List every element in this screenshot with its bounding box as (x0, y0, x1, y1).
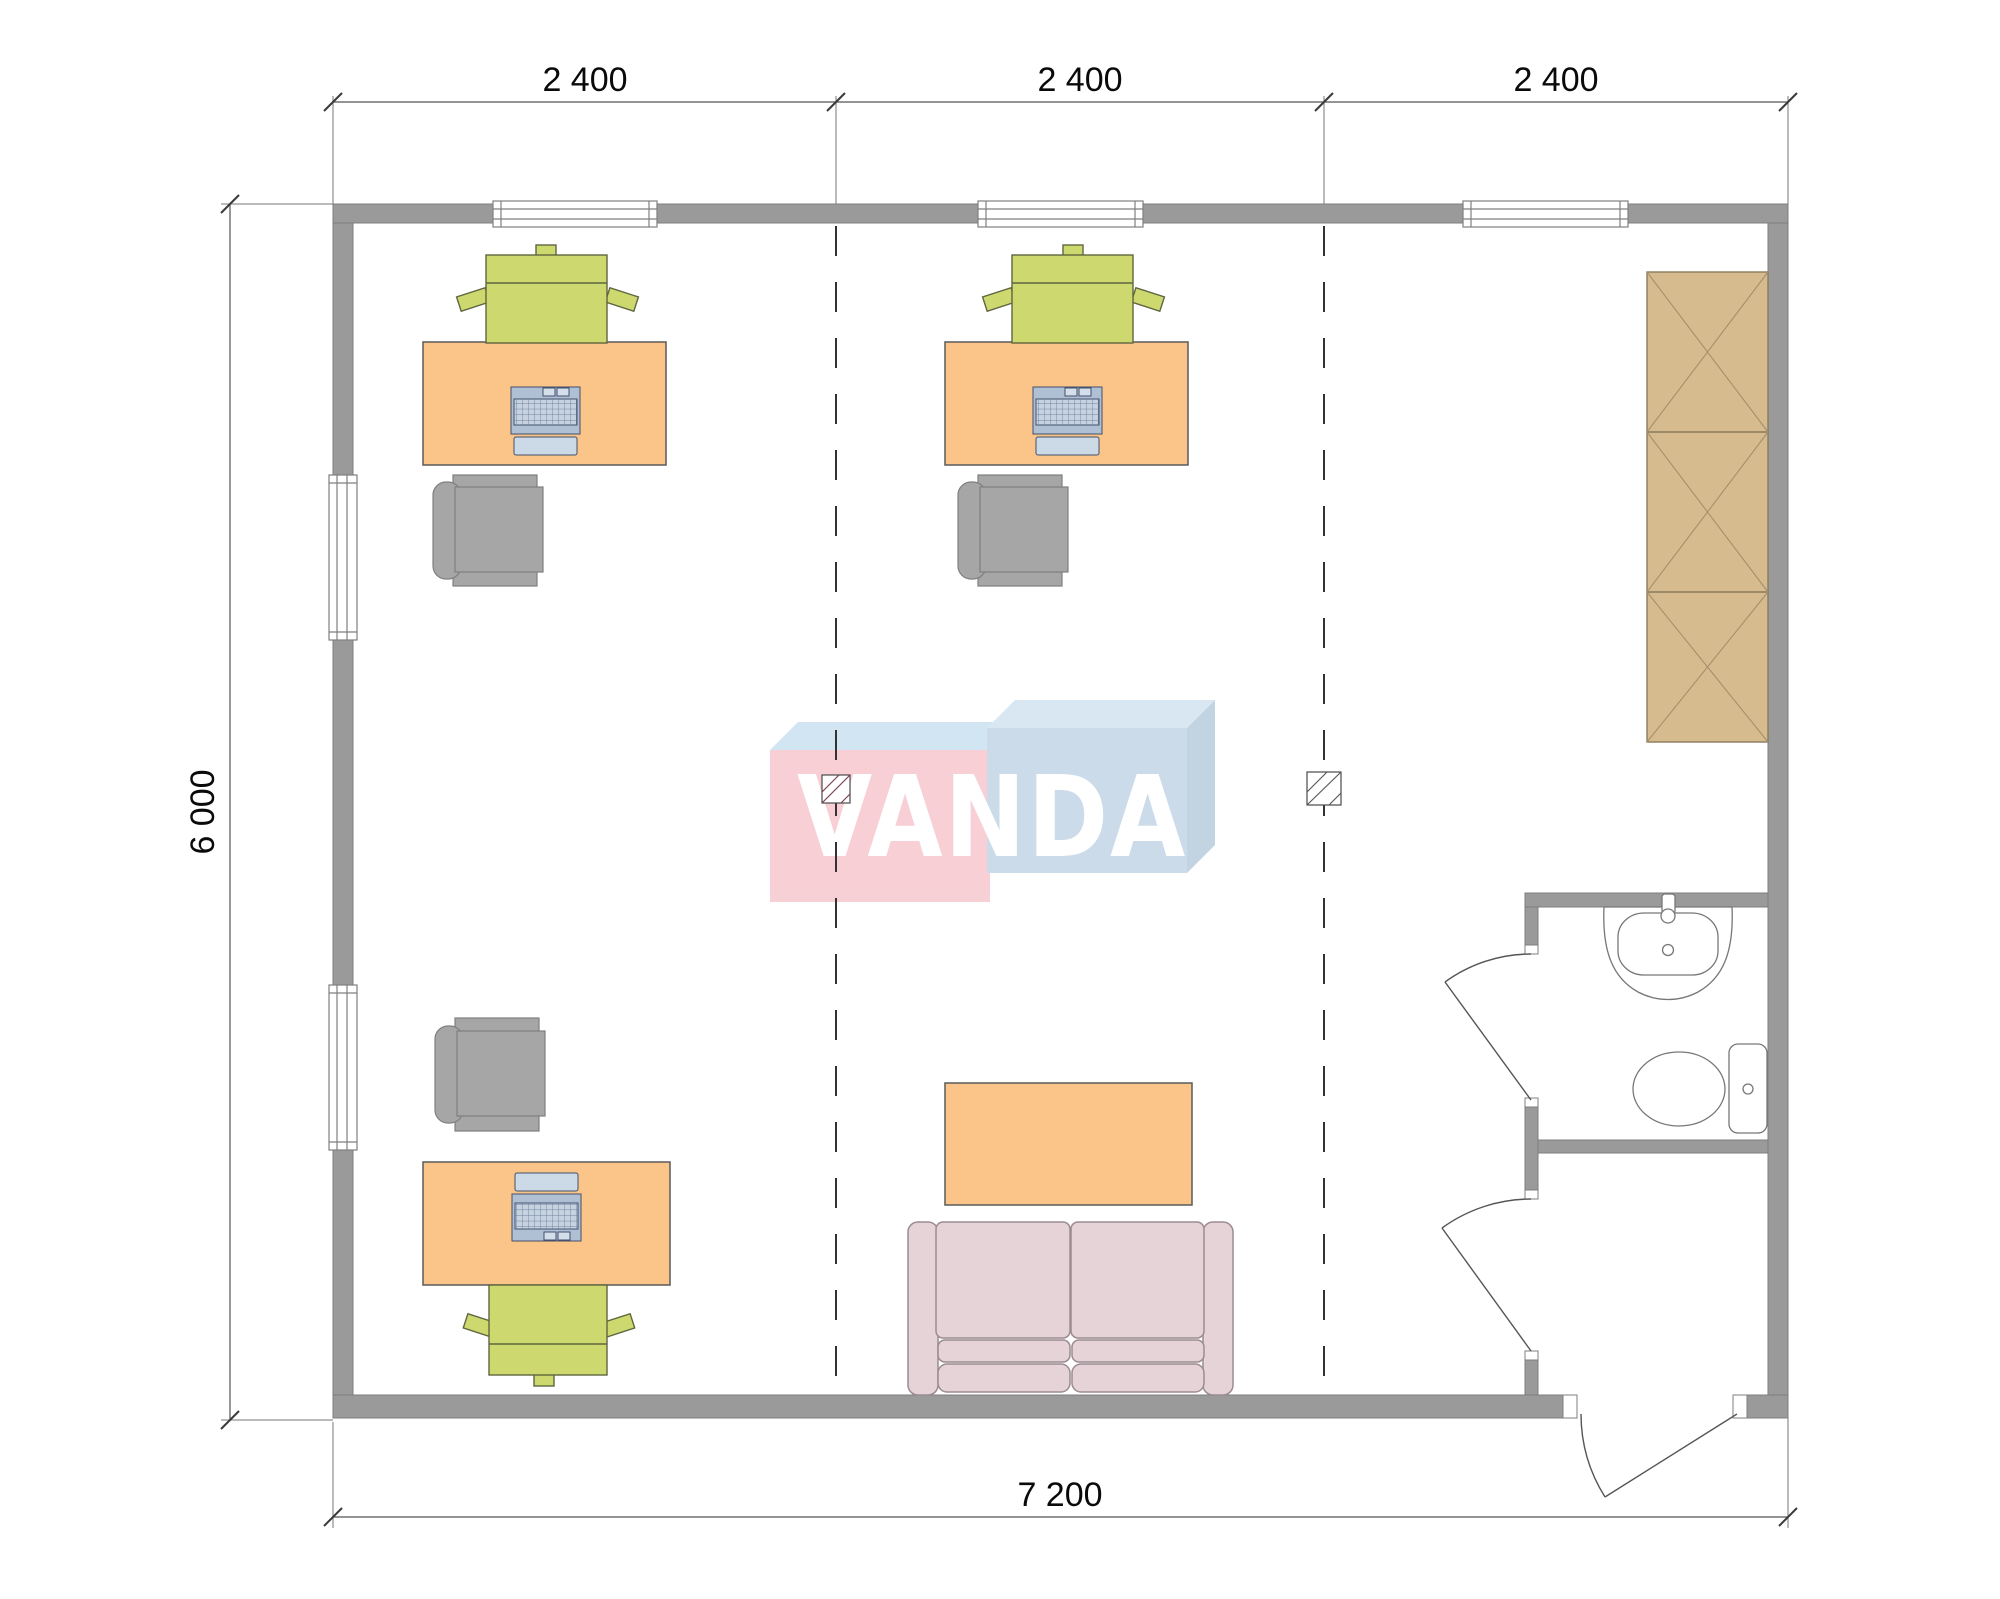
window-left-2 (329, 985, 357, 1150)
visitor-chair-2 (958, 475, 1068, 586)
chair-body (489, 1285, 607, 1375)
column-marker-1 (822, 775, 850, 803)
sofa-seat-right-1 (1072, 1340, 1204, 1362)
laptop-3 (512, 1173, 581, 1241)
door-arc (1442, 1199, 1531, 1228)
chair-armrest-right (605, 288, 638, 312)
jamb (1563, 1395, 1577, 1418)
door-leaf (1445, 982, 1531, 1100)
laptop-1 (511, 387, 580, 455)
chair-arm-bottom (455, 1115, 539, 1131)
door-leaf (1442, 1228, 1531, 1351)
vestibule-door (1442, 1199, 1531, 1351)
dim-label-top-2: 2 400 (1037, 61, 1122, 99)
sofa-arm-left (908, 1222, 938, 1395)
laptop-hinge (1079, 388, 1091, 396)
bathroom-divider-wall (1538, 1140, 1768, 1153)
sink (1604, 894, 1732, 1000)
chair-armrest-left (983, 288, 1016, 312)
laptop-hinge (1065, 388, 1077, 396)
sofa-seat-left-2 (938, 1364, 1070, 1392)
laptop-hinge (543, 388, 555, 396)
dim-label-top-3: 2 400 (1513, 61, 1598, 99)
door-leaf (1605, 1414, 1737, 1497)
sofa-seat-right-2 (1072, 1364, 1204, 1392)
laptop-lid (515, 1173, 578, 1191)
sink-faucet-head (1661, 909, 1675, 923)
toilet-flush-button (1743, 1084, 1753, 1094)
chair-seat (457, 1031, 545, 1116)
bathroom-wall-left-b (1525, 1107, 1538, 1190)
toilet (1633, 1044, 1767, 1133)
logo-left-top-face (770, 722, 1018, 750)
window-top-1 (493, 201, 657, 227)
dim-label-bottom: 7 200 (1017, 1476, 1102, 1514)
window-left-1 (329, 475, 357, 640)
sink-drain (1663, 945, 1674, 956)
cabinet-body (1647, 272, 1768, 742)
dim-label-left: 6 000 (184, 769, 222, 854)
chair-body (1012, 255, 1133, 343)
bathroom-wall-left-c (1525, 1360, 1538, 1395)
laptop-keyboard-grid (515, 1203, 578, 1229)
wall-bottom-left-segment (333, 1395, 1563, 1418)
task-chair-3 (463, 1285, 634, 1386)
laptop-keyboard-grid (1036, 399, 1099, 425)
laptop-lid (514, 437, 577, 455)
wall-left (333, 223, 353, 1395)
chair-armrest-left (457, 288, 490, 312)
dim-label-top-1: 2 400 (542, 61, 627, 99)
floor-plan-page: VANDA 2 400 2 400 2 400 6 000 7 (0, 0, 2000, 1599)
sofa-seat-left-1 (938, 1340, 1070, 1362)
door-arc (1581, 1414, 1605, 1497)
chair-seat (980, 487, 1068, 572)
task-chair-1 (457, 245, 639, 343)
chair-armrest-right (1131, 288, 1164, 312)
visitor-chair-1 (433, 475, 543, 586)
window-top-2 (978, 201, 1143, 227)
laptop-keyboard-grid (514, 399, 577, 425)
chair-body (486, 255, 607, 343)
column-marker-2 (1307, 772, 1341, 805)
wall-right (1768, 223, 1788, 1395)
jamb (1525, 945, 1538, 954)
laptop-lid (1036, 437, 1099, 455)
floor-plan-canvas: VANDA 2 400 2 400 2 400 6 000 7 (0, 0, 2000, 1599)
bathroom-door (1445, 954, 1531, 1100)
sofa-arm-right (1203, 1222, 1233, 1395)
coffee-table (945, 1083, 1192, 1205)
bathroom-wall-left-a (1525, 907, 1538, 945)
sofa-back-cushion-right (1071, 1222, 1204, 1338)
sofa-back-cushion-left (936, 1222, 1070, 1338)
jamb (1525, 1098, 1538, 1107)
task-chair-2 (983, 245, 1165, 343)
jamb (1525, 1190, 1538, 1199)
visitor-chair-3 (435, 1018, 545, 1131)
entrance-door (1581, 1414, 1737, 1497)
bathroom-wall-top (1525, 893, 1768, 907)
door-arc (1445, 954, 1531, 982)
logo-right-top-face (987, 700, 1215, 728)
laptop-hinge (557, 388, 569, 396)
logo-right-side-face (1187, 700, 1215, 873)
toilet-bowl (1633, 1052, 1725, 1126)
laptop-hinge (558, 1232, 570, 1240)
sofa (908, 1222, 1233, 1395)
laptop-2 (1033, 387, 1102, 455)
window-top-3 (1463, 201, 1628, 227)
door-jambs (1525, 945, 1747, 1418)
logo-text: VANDA (797, 753, 1187, 883)
wardrobe-cabinet (1647, 272, 1768, 742)
chair-seat (455, 487, 543, 572)
jamb (1525, 1351, 1538, 1360)
laptop-hinge (544, 1232, 556, 1240)
wall-bottom-right-segment (1747, 1395, 1788, 1418)
